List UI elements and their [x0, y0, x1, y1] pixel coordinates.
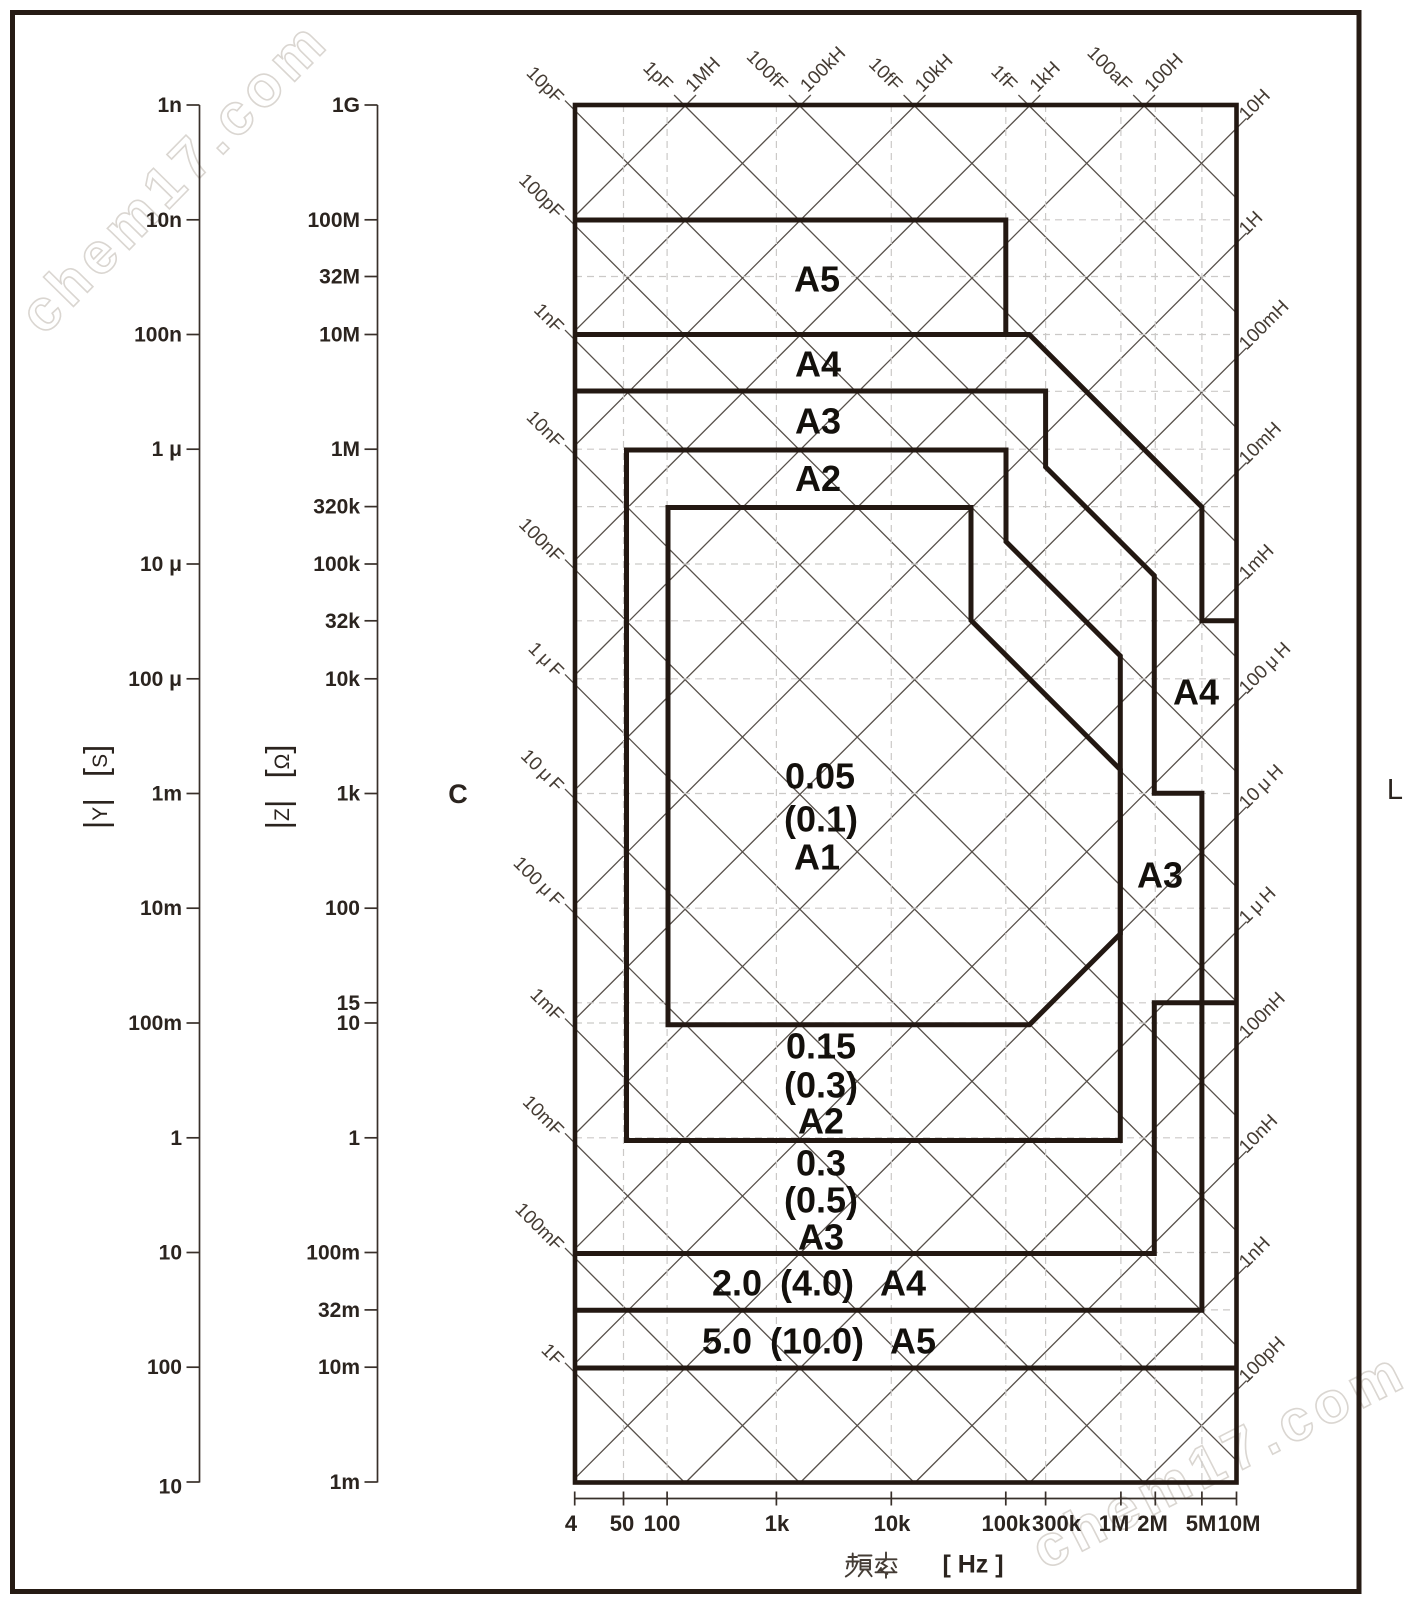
svg-text:10 μ: 10 μ — [140, 553, 182, 576]
svg-text:1M: 1M — [1099, 1511, 1130, 1536]
svg-text:A3: A3 — [1137, 855, 1183, 896]
svg-text:1k: 1k — [765, 1511, 790, 1536]
svg-text:1 μ: 1 μ — [152, 438, 182, 461]
svg-text:10M: 10M — [319, 324, 360, 347]
svg-text:1n: 1n — [157, 94, 182, 117]
svg-text:0.05: 0.05 — [785, 756, 855, 797]
svg-text:1m: 1m — [152, 783, 182, 806]
svg-text:10n: 10n — [146, 209, 182, 232]
svg-text:1k: 1k — [337, 783, 361, 806]
svg-text:A5: A5 — [794, 259, 840, 300]
svg-text:100: 100 — [147, 1356, 182, 1379]
svg-text:50: 50 — [610, 1511, 634, 1536]
svg-text:(0.3): (0.3) — [784, 1065, 858, 1106]
svg-text:1: 1 — [170, 1127, 182, 1150]
svg-text:4: 4 — [565, 1511, 578, 1536]
svg-text:100: 100 — [325, 897, 360, 920]
svg-text:[ Hz ]: [ Hz ] — [942, 1551, 1003, 1579]
svg-text:10: 10 — [159, 1242, 182, 1265]
svg-text:1: 1 — [348, 1127, 360, 1150]
svg-text:100m: 100m — [306, 1242, 360, 1265]
svg-text:10: 10 — [337, 1012, 360, 1035]
svg-text:5M: 5M — [1186, 1511, 1217, 1536]
svg-text:A2: A2 — [795, 458, 841, 499]
svg-text:1M: 1M — [331, 438, 360, 461]
svg-text:L: L — [1387, 774, 1403, 806]
svg-text:100m: 100m — [128, 1012, 182, 1035]
svg-text:A4: A4 — [880, 1263, 926, 1304]
svg-text:10M: 10M — [1218, 1511, 1261, 1536]
svg-text:32m: 32m — [318, 1299, 360, 1322]
svg-text:10k: 10k — [874, 1511, 911, 1536]
svg-text:5.0: 5.0 — [702, 1321, 752, 1362]
svg-text:A3: A3 — [798, 1217, 844, 1258]
svg-text:2.0: 2.0 — [712, 1263, 762, 1304]
svg-text:32M: 32M — [319, 266, 360, 289]
svg-text:(10.0): (10.0) — [770, 1321, 864, 1362]
svg-text:10: 10 — [159, 1476, 182, 1499]
svg-text:A2: A2 — [798, 1101, 844, 1142]
svg-text:A5: A5 — [890, 1321, 936, 1362]
svg-text:(0.5): (0.5) — [784, 1180, 858, 1221]
svg-text:0.3: 0.3 — [796, 1143, 846, 1184]
svg-text:A4: A4 — [795, 344, 841, 385]
svg-text:320k: 320k — [313, 496, 360, 519]
svg-text:10k: 10k — [325, 668, 360, 691]
svg-text:100 μ: 100 μ — [128, 668, 182, 691]
svg-text:2M: 2M — [1137, 1511, 1168, 1536]
svg-text:32k: 32k — [325, 610, 360, 633]
svg-text:1m: 1m — [330, 1471, 360, 1494]
svg-text:1G: 1G — [332, 94, 360, 117]
svg-text:(4.0): (4.0) — [780, 1263, 854, 1304]
svg-text:100M: 100M — [307, 209, 360, 232]
svg-text:100k: 100k — [313, 553, 360, 576]
svg-text:A4: A4 — [1173, 672, 1219, 713]
svg-text:C: C — [448, 779, 468, 809]
svg-text:0.15: 0.15 — [786, 1026, 856, 1067]
svg-text:100n: 100n — [134, 324, 182, 347]
svg-text:100k: 100k — [982, 1511, 1032, 1536]
svg-text:(0.1): (0.1) — [784, 799, 858, 840]
svg-text:10m: 10m — [318, 1356, 360, 1379]
svg-text:300k: 300k — [1032, 1511, 1082, 1536]
svg-text:A3: A3 — [795, 401, 841, 442]
svg-text:10m: 10m — [140, 897, 182, 920]
svg-text:100: 100 — [644, 1511, 681, 1536]
svg-text:A1: A1 — [794, 837, 840, 878]
